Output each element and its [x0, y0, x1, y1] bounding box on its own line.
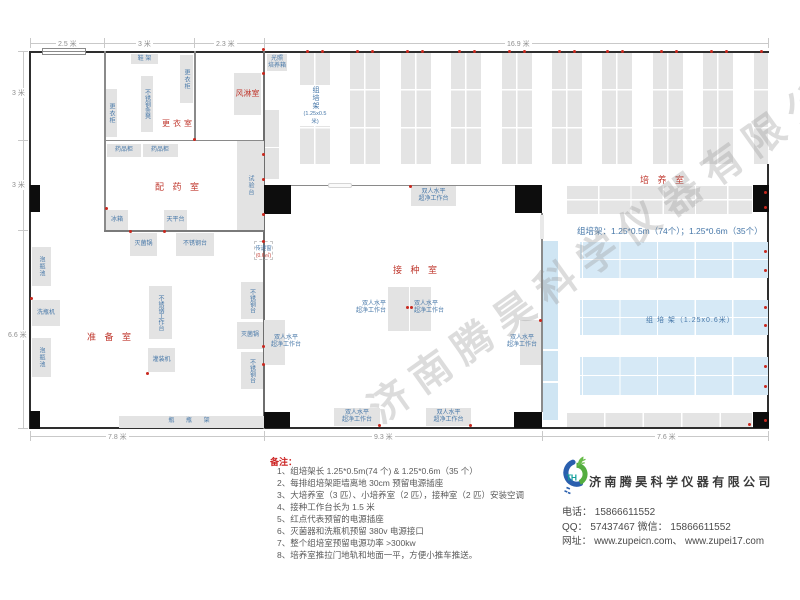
- svg-text:TH: TH: [566, 473, 577, 483]
